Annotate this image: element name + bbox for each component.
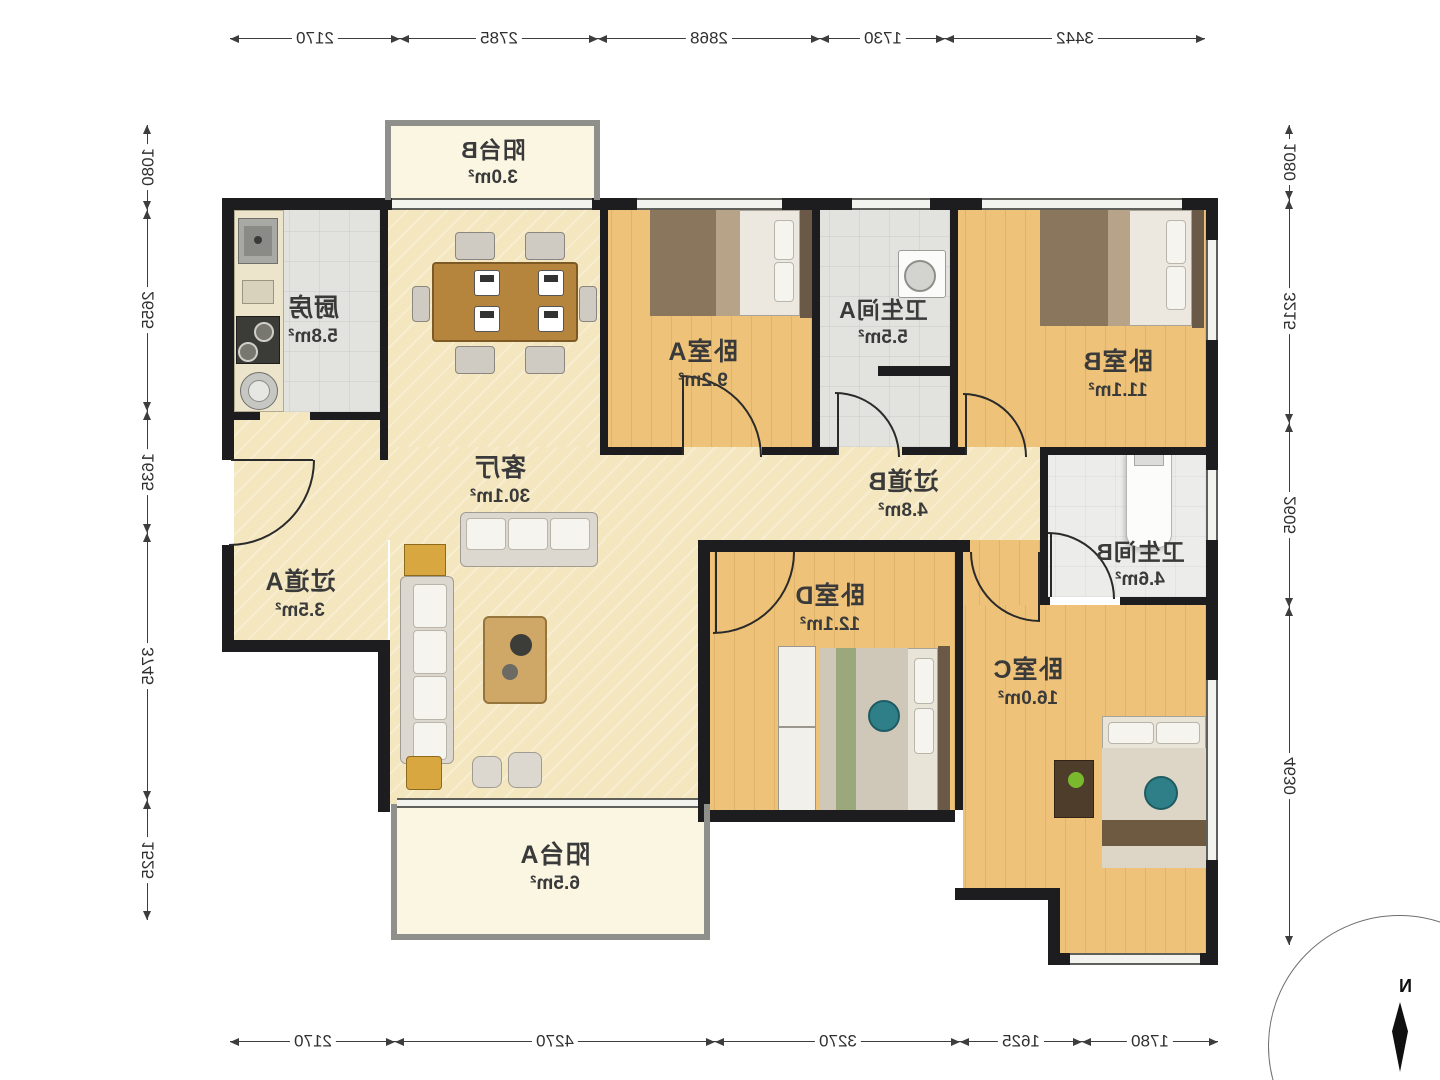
nightstand: [1054, 760, 1094, 818]
sofa-cushion: [508, 518, 548, 550]
bedroom-c-throw: [1102, 820, 1206, 846]
wall-bedroom-b-bath-a: [950, 204, 958, 455]
dim-label: 1525: [138, 837, 159, 883]
window-bedroom-c-bottom: [1070, 953, 1200, 965]
bed-pillow: [774, 262, 794, 302]
wall-bedroom-d-bottom: [698, 810, 955, 822]
balcony-a-wall-right: [391, 804, 397, 940]
room-name: 阳台B: [460, 131, 526, 165]
pouf-yellow: [406, 756, 442, 790]
dim-label: 3215: [1280, 288, 1301, 334]
balcony-a-wall-left: [704, 804, 710, 940]
room-name: 卧室B: [1082, 342, 1153, 378]
room-area: 5.8m²: [287, 326, 339, 348]
bedroom-a-duvet-fold: [716, 210, 740, 316]
coffee-table-decor: [502, 664, 518, 680]
wall-kitchen-left: [380, 204, 388, 460]
coffee-table-decor: [510, 634, 532, 656]
wall-bath-a-bedroom-a: [812, 204, 820, 455]
wall-exterior-right-upper: [222, 198, 234, 460]
room-area: 4.6m²: [1095, 569, 1185, 591]
bedroom-d-door-leaf: [715, 552, 717, 632]
kitchen-pot-inner: [248, 380, 270, 402]
room-label-bedroom-d: 卧室D 12.1m²: [794, 576, 865, 636]
plant-lamp: [1068, 772, 1084, 788]
bedroom-b-headboard: [1192, 208, 1204, 328]
bedroom-d-duvet-stripe: [836, 648, 856, 812]
dim-label: 4270: [532, 1031, 578, 1052]
wall-bath-b-right: [1040, 455, 1048, 605]
room-area: 30.1m²: [470, 486, 530, 508]
dim-label: 1080: [138, 144, 159, 190]
window-balcony-b-living: [392, 198, 592, 210]
bedroom-b-door-leaf: [965, 395, 967, 455]
dim-label: 3270: [815, 1031, 861, 1052]
room-label-balcony-a: 阳台A 6.5m²: [519, 835, 590, 895]
window-bath-b-side: [1206, 470, 1218, 540]
room-area: 3.0m²: [460, 167, 526, 189]
wall-bedrooms-bottom-3: [762, 447, 837, 455]
room-name: 厨房: [287, 288, 339, 324]
wardrobe-divider: [778, 726, 816, 728]
room-label-living: 客厅 30.1m²: [470, 448, 530, 508]
sink-drain: [254, 236, 262, 244]
sofa-cushion: [413, 676, 447, 720]
window-bedroom-c-side: [1206, 680, 1218, 860]
balcony-b-wall-top: [385, 120, 600, 126]
bed-pillow: [1156, 722, 1200, 744]
room-area: 3.5m²: [264, 600, 335, 622]
room-area: 6.5m²: [519, 873, 590, 895]
bath-a-half-wall: [878, 366, 950, 376]
dim-label: 2868: [686, 28, 732, 49]
room-area: 9.2m²: [667, 370, 738, 392]
dim-label: 1625: [998, 1031, 1044, 1052]
dim-label: 4630: [1280, 753, 1301, 799]
room-name: 过道A: [264, 562, 335, 598]
bed-pillow: [1166, 266, 1186, 310]
entry-door-leaf: [231, 459, 313, 461]
sofa-cushion: [466, 518, 506, 550]
wall-kitchen-bottom-2: [234, 412, 260, 420]
bed-pillow: [914, 708, 934, 754]
compass-circle: [1268, 915, 1440, 1080]
dim-label: 2605: [1280, 492, 1301, 538]
wardrobe: [778, 646, 816, 812]
dining-side-chair: [579, 286, 597, 322]
bedroom-d-headboard: [938, 646, 950, 812]
bed-pillow: [774, 220, 794, 260]
sofa-cushion: [413, 584, 447, 628]
bed-pillow: [1166, 220, 1186, 264]
round-pillow-teal: [1144, 776, 1178, 810]
window-bath-a: [852, 198, 930, 210]
place-setting: [538, 270, 564, 296]
dining-chair: [455, 346, 495, 374]
room-label-balcony-b: 阳台B 3.0m²: [460, 131, 526, 189]
room-name: 卧室D: [794, 576, 865, 612]
room-name: 过道B: [867, 462, 938, 498]
stove-burner: [238, 342, 258, 362]
dim-label: 1080: [1280, 139, 1301, 185]
place-setting: [474, 270, 500, 296]
room-label-hall-a: 过道A 3.5m²: [264, 562, 335, 622]
washing-machine-door: [904, 260, 936, 292]
dim-label: 2655: [138, 287, 159, 333]
coffee-table: [483, 616, 547, 704]
room-area: 4.8m²: [867, 500, 938, 522]
room-area: 5.5m²: [838, 327, 928, 349]
dim-label: 1780: [1127, 1031, 1173, 1052]
room-label-bedroom-c: 卧室C 16.0m²: [992, 650, 1063, 710]
window-bedroom-b: [982, 198, 1182, 210]
room-label-bedroom-b: 卧室B 11.1m²: [1082, 342, 1153, 402]
bath-a-door-leaf: [837, 394, 839, 455]
bedroom-c-door-leaf: [1038, 552, 1040, 620]
room-label-hall-b: 过道B 4.8m²: [867, 462, 938, 522]
dining-chair: [455, 232, 495, 260]
room-name: 卫生间A: [838, 291, 928, 325]
dining-chair: [525, 232, 565, 260]
bed-pillow: [1108, 722, 1154, 744]
wall-bath-b-bottom-1: [1120, 597, 1218, 605]
dining-chair: [525, 346, 565, 374]
balcony-b-wall-left: [594, 120, 600, 200]
balcony-a-wall-bottom: [391, 934, 710, 940]
window-bedroom-b-side: [1206, 240, 1218, 340]
bedroom-a-headboard: [800, 208, 812, 318]
dim-label: 3745: [138, 643, 159, 689]
balcony-b-wall-right: [385, 120, 391, 200]
bedroom-b-duvet-fold: [1108, 210, 1130, 326]
room-name: 卫生间B: [1095, 533, 1185, 567]
kitchen-appliance: [242, 280, 274, 304]
room-area: 11.1m²: [1082, 380, 1153, 402]
room-name: 卧室A: [667, 332, 738, 368]
wall-bedrooms-bottom-1: [1040, 447, 1218, 455]
living-balcony-a-glass: [397, 798, 698, 808]
place-setting: [474, 306, 500, 332]
room-label-bath-b: 卫生间B 4.6m²: [1095, 533, 1185, 591]
round-pillow-teal: [868, 700, 900, 732]
room-name: 客厅: [470, 448, 530, 484]
wall-hall-a-bottom: [222, 640, 390, 652]
sofa-cushion: [413, 630, 447, 674]
dim-label: 1730: [860, 28, 906, 49]
wall-exterior-right-lower: [222, 545, 234, 652]
window-bedroom-a: [637, 198, 782, 210]
wall-corridor-bottom: [698, 540, 970, 552]
dim-label: 1635: [138, 449, 159, 495]
sofa-cushion: [550, 518, 590, 550]
room-label-bedroom-a: 卧室A 9.2m²: [667, 332, 738, 392]
wall-kitchen-bottom-1: [310, 412, 388, 420]
room-name: 卧室C: [992, 650, 1063, 686]
tv-console: [404, 544, 446, 576]
room-area: 12.1m²: [794, 614, 865, 636]
dim-label: 2785: [476, 28, 522, 49]
wall-bedrooms-bottom-4: [600, 447, 682, 455]
compass-north-label: N: [1399, 976, 1412, 997]
dim-label: 2170: [292, 28, 338, 49]
wall-bedrooms-bottom-2: [902, 447, 965, 455]
wall-bedroom-d-right: [698, 540, 710, 822]
bath-b-door-leaf: [1050, 534, 1052, 597]
bedroom-d-duvet: [820, 648, 908, 812]
wall-bedroom-c-step-h: [955, 888, 1060, 900]
pouf: [472, 756, 502, 788]
dining-side-chair: [412, 286, 430, 322]
wall-living-right-lower: [378, 640, 390, 812]
pouf: [508, 752, 542, 788]
dim-label: 3442: [1052, 28, 1098, 49]
stove-burner: [254, 322, 274, 342]
sofa-cushion: [413, 722, 447, 760]
floor-plan-canvas: 阳台B 3.0m² 厨房 5.8m² 卧室A 9.2m² 卫生间A 5.5m² …: [0, 0, 1440, 1080]
dim-label: 2170: [290, 1031, 336, 1052]
bed-pillow: [914, 658, 934, 704]
room-label-bath-a: 卫生间A 5.5m²: [838, 291, 928, 349]
wall-bedroom-a-living: [600, 204, 608, 455]
room-area: 16.0m²: [992, 688, 1063, 710]
room-name: 阳台A: [519, 835, 590, 871]
wall-bedroom-d-left: [955, 552, 963, 810]
bedroom-c-floor-lower: [1060, 888, 1206, 953]
place-setting: [538, 306, 564, 332]
floor-plan-screenshot: 阳台B 3.0m² 厨房 5.8m² 卧室A 9.2m² 卫生间A 5.5m² …: [0, 0, 1440, 1080]
room-label-kitchen: 厨房 5.8m²: [287, 288, 339, 348]
